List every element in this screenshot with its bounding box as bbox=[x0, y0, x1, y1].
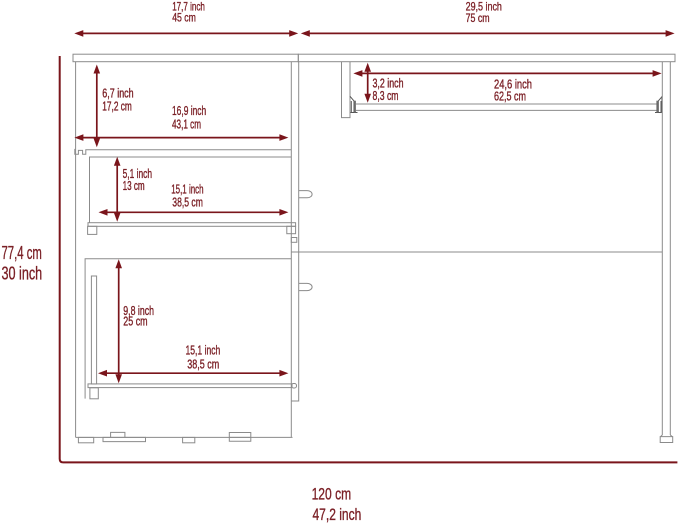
svg-text:45 cm: 45 cm bbox=[172, 11, 196, 25]
svg-text:15,1 inch: 15,1 inch bbox=[186, 342, 221, 357]
svg-text:47,2 inch: 47,2 inch bbox=[313, 505, 362, 524]
svg-text:43,1 cm: 43,1 cm bbox=[172, 117, 201, 131]
svg-text:25 cm: 25 cm bbox=[123, 314, 147, 328]
svg-text:17,2 cm: 17,2 cm bbox=[102, 99, 132, 113]
svg-text:120 cm: 120 cm bbox=[312, 484, 352, 503]
svg-text:77,4 cm: 77,4 cm bbox=[2, 243, 42, 263]
svg-text:38,5 cm: 38,5 cm bbox=[172, 195, 203, 209]
svg-text:75 cm: 75 cm bbox=[466, 11, 490, 25]
svg-text:38,5 cm: 38,5 cm bbox=[187, 356, 219, 371]
svg-text:62,5 cm: 62,5 cm bbox=[494, 89, 526, 103]
svg-text:13 cm: 13 cm bbox=[123, 179, 145, 193]
svg-text:8,3 cm: 8,3 cm bbox=[373, 89, 399, 103]
svg-text:16,9 inch: 16,9 inch bbox=[172, 104, 206, 118]
svg-text:30 inch: 30 inch bbox=[2, 263, 43, 283]
